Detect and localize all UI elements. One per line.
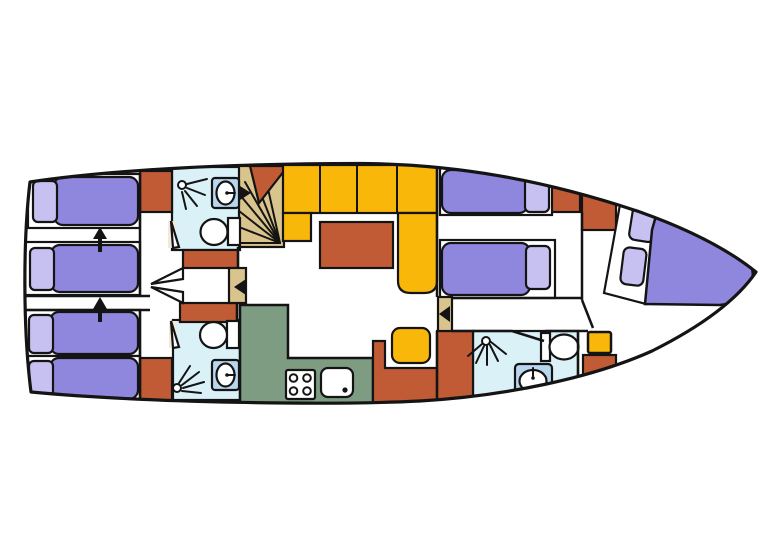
bed-pillow: [30, 248, 54, 290]
bed-single: [51, 245, 138, 292]
seat-stool: [588, 332, 611, 353]
sink-basin: [321, 368, 353, 397]
washbasin-icon: [212, 360, 239, 390]
shower-head: [178, 181, 186, 189]
toilet-tank: [228, 218, 240, 245]
cabinet: [183, 250, 238, 268]
bed-single: [54, 177, 138, 225]
toilet-bowl: [201, 219, 228, 245]
toilet-icon: [200, 321, 239, 348]
stove-icon: [286, 370, 315, 399]
washbasin-icon: [515, 364, 552, 398]
cabinet: [582, 180, 616, 230]
bed-pillow: [525, 173, 549, 212]
sofa-left-return: [283, 213, 311, 241]
arrow-head: [93, 297, 107, 309]
galley-sink-icon: [321, 368, 353, 397]
cabinet: [180, 303, 237, 322]
toilet-bowl: [550, 335, 579, 360]
basin-drain: [225, 191, 229, 195]
basin-drain: [531, 376, 535, 380]
cabinet: [140, 171, 172, 212]
cabinet: [437, 331, 473, 401]
bed-pillow: [33, 181, 57, 222]
washbasin-icon: [212, 178, 239, 208]
basin-drain: [225, 373, 229, 377]
sofa-right-return: [398, 213, 437, 293]
toilet-icon: [541, 333, 579, 361]
door-swing-icon: [151, 268, 183, 284]
cabin-door: [438, 297, 452, 331]
bow-cabin: [604, 199, 753, 305]
staircase: [239, 166, 284, 247]
stove-top: [286, 370, 315, 399]
bed-pillow: [29, 315, 53, 353]
toilet-tank: [227, 321, 239, 348]
bed-single: [442, 170, 528, 213]
door-swing-icon: [151, 287, 183, 303]
sofa-back-row: [283, 165, 437, 213]
bed-pillow: [620, 247, 647, 287]
bed-single: [50, 312, 138, 354]
sink-drain: [342, 387, 347, 392]
shower-head: [482, 337, 490, 345]
shower-head: [173, 384, 181, 392]
salon-table: [320, 222, 393, 268]
bed-pillow: [526, 246, 550, 289]
cabin-door: [229, 268, 246, 303]
bed-single: [442, 243, 530, 295]
bed-single: [50, 358, 138, 399]
toilet-icon: [201, 218, 241, 245]
seat-stool: [392, 328, 430, 363]
floor-plan-canvas: [0, 0, 780, 551]
cabinet: [140, 358, 172, 402]
toilet-bowl: [200, 322, 227, 348]
aft-cabin-lower: [24, 310, 140, 402]
mid-cabin: [440, 167, 555, 298]
aft-cabin-upper: [25, 174, 140, 295]
